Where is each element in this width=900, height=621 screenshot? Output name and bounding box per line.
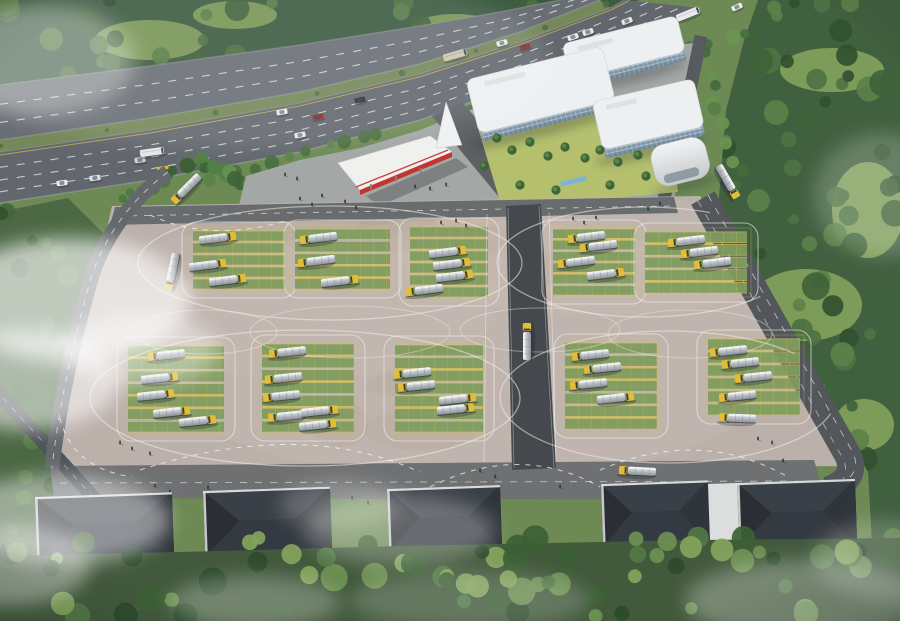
- scene-canvas: [0, 0, 900, 621]
- vignette-overlay: [0, 0, 900, 621]
- aerial-depot-render: [0, 0, 900, 621]
- vignette: [0, 0, 900, 621]
